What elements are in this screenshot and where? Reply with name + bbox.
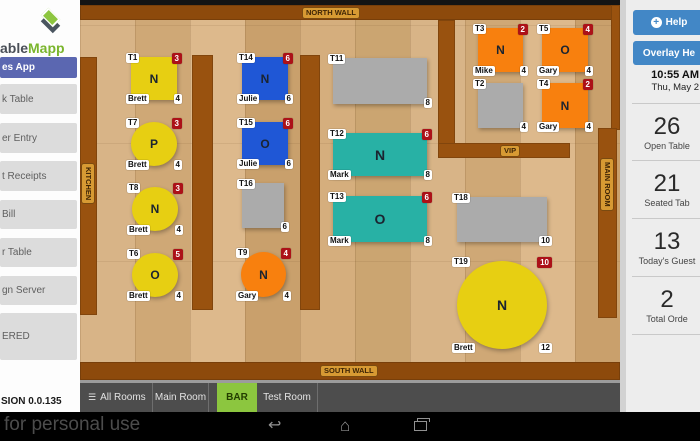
date-label: Thu, May 2 bbox=[626, 82, 699, 94]
table-id-chip: T13 bbox=[328, 192, 346, 202]
tab-bar: All RoomsMain RoomBARTest Room bbox=[80, 383, 620, 412]
stat-0: 26Open Table bbox=[632, 103, 700, 161]
server-chip: Gary bbox=[236, 291, 258, 301]
seats-chip: 4 bbox=[585, 66, 593, 76]
server-chip: Gary bbox=[537, 122, 559, 132]
status-badge: 3 bbox=[172, 118, 182, 129]
seats-chip: 6 bbox=[285, 94, 293, 104]
status-badge: 3 bbox=[173, 183, 183, 194]
table-id-chip: T16 bbox=[237, 179, 255, 189]
status-badge: 3 bbox=[172, 53, 182, 64]
table-letter: N bbox=[457, 261, 547, 349]
sidebar-item-6[interactable]: gn Server bbox=[0, 276, 77, 305]
wall-vip-right bbox=[611, 5, 620, 130]
main-room-label: MAIN ROOM bbox=[600, 158, 614, 211]
stat-label: Today's Guest bbox=[639, 256, 696, 267]
status-badge: 2 bbox=[518, 24, 528, 35]
seats-chip: 4 bbox=[174, 94, 182, 104]
seats-chip: 8 bbox=[424, 170, 432, 180]
wall-divider-1 bbox=[192, 55, 213, 310]
server-chip: Julie bbox=[237, 159, 259, 169]
sidebar-item-5[interactable]: r Table bbox=[0, 238, 77, 267]
sidebar-item-1[interactable]: k Table bbox=[0, 84, 77, 114]
table-t11[interactable]: T118 bbox=[333, 58, 427, 104]
table-id-chip: T8 bbox=[127, 183, 140, 193]
table-t19[interactable]: T1910NBrett12 bbox=[457, 261, 547, 349]
seats-chip: 4 bbox=[520, 66, 528, 76]
watermark-text: for personal use bbox=[4, 414, 140, 436]
table-id-chip: T1 bbox=[126, 53, 139, 63]
help-icon bbox=[651, 17, 662, 28]
status-badge: 6 bbox=[422, 129, 432, 140]
table-t9[interactable]: T94NGary4 bbox=[241, 252, 286, 297]
tab-test_room[interactable]: Test Room bbox=[257, 383, 318, 412]
table-id-chip: T5 bbox=[537, 24, 550, 34]
table-t13[interactable]: T136OMark8 bbox=[333, 196, 427, 242]
north-wall-label: NORTH WALL bbox=[302, 7, 360, 19]
tablemapp-logo-icon bbox=[36, 6, 66, 36]
table-id-chip: T11 bbox=[328, 54, 345, 64]
clock: 10:55 AM Thu, May 2 bbox=[626, 69, 699, 94]
seats-chip: 6 bbox=[281, 222, 289, 232]
table-id-chip: T12 bbox=[328, 129, 346, 139]
tablemapp-app: ableMapp es Appk Tableer Entryt Receipts… bbox=[0, 0, 700, 441]
table-id-chip: T6 bbox=[127, 249, 140, 259]
status-badge: 5 bbox=[173, 249, 183, 260]
time-label: 10:55 AM bbox=[626, 69, 699, 82]
recents-icon[interactable] bbox=[414, 421, 427, 431]
table-t7[interactable]: T73PBrett4 bbox=[131, 122, 177, 166]
table-t14[interactable]: T146NJulie6 bbox=[242, 57, 288, 100]
table-id-chip: T9 bbox=[236, 248, 249, 258]
status-badge: 10 bbox=[537, 257, 552, 268]
kitchen-label: KITCHEN bbox=[81, 163, 95, 204]
table-t5[interactable]: T54OGary4 bbox=[542, 28, 588, 72]
server-chip: Gary bbox=[537, 66, 559, 76]
table-id-chip: T15 bbox=[237, 118, 255, 128]
server-chip: Mike bbox=[473, 66, 495, 76]
server-chip: Mark bbox=[328, 170, 351, 180]
server-chip: Brett bbox=[126, 94, 149, 104]
table-id-chip: T7 bbox=[126, 118, 139, 128]
status-badge: 6 bbox=[422, 192, 432, 203]
server-chip: Mark bbox=[328, 236, 351, 246]
tab-main_room[interactable]: Main Room bbox=[153, 383, 209, 412]
seats-chip: 4 bbox=[175, 291, 183, 301]
stat-3: 2Total Orde bbox=[632, 277, 700, 335]
seats-chip: 4 bbox=[585, 122, 593, 132]
sidebar-item-3[interactable]: t Receipts bbox=[0, 161, 77, 191]
seats-chip: 4 bbox=[283, 291, 291, 301]
table-id-chip: T4 bbox=[537, 79, 550, 89]
server-chip: Julie bbox=[237, 94, 259, 104]
wall-vip-left bbox=[438, 20, 455, 158]
stat-value: 2 bbox=[660, 286, 673, 314]
sidebar-item-7[interactable]: ERED bbox=[0, 313, 77, 360]
server-chip: Brett bbox=[127, 291, 150, 301]
table-t2[interactable]: T24 bbox=[478, 83, 523, 128]
table-t18[interactable]: T1810 bbox=[457, 197, 547, 242]
table-id-chip: T19 bbox=[452, 257, 470, 267]
server-chip: Brett bbox=[126, 160, 149, 170]
sidebar-item-0[interactable]: es App bbox=[0, 57, 77, 78]
sidebar-item-4[interactable]: Bill bbox=[0, 200, 77, 229]
status-badge: 4 bbox=[281, 248, 291, 259]
seats-chip: 6 bbox=[285, 159, 293, 169]
table-t1[interactable]: T13NBrett4 bbox=[131, 57, 177, 100]
table-id-chip: T3 bbox=[473, 24, 486, 34]
table-id-chip: T14 bbox=[237, 53, 255, 63]
home-icon[interactable] bbox=[340, 416, 350, 436]
server-chip: Brett bbox=[452, 343, 475, 353]
stat-1: 21Seated Tab bbox=[632, 161, 700, 219]
stat-value: 21 bbox=[654, 170, 681, 198]
help-button[interactable]: Help bbox=[633, 10, 700, 35]
wall-divider-2 bbox=[300, 55, 320, 310]
table-id-chip: T2 bbox=[473, 79, 486, 89]
back-icon[interactable] bbox=[268, 416, 281, 436]
server-chip: Brett bbox=[127, 225, 150, 235]
table-t6[interactable]: T65OBrett4 bbox=[132, 253, 178, 297]
tab-all_rooms[interactable]: All Rooms bbox=[80, 383, 153, 412]
stat-label: Open Table bbox=[644, 141, 690, 152]
seats-chip: 12 bbox=[539, 343, 552, 353]
status-badge: 6 bbox=[283, 53, 293, 64]
south-wall-label: SOUTH WALL bbox=[320, 365, 378, 377]
floor-plan: NORTH WALL SOUTH WALL KITCHEN MAIN ROOM … bbox=[80, 0, 620, 412]
seats-chip: 10 bbox=[539, 236, 552, 246]
android-nav-bar: for personal use bbox=[0, 412, 700, 441]
stat-2: 13Today's Guest bbox=[632, 219, 700, 277]
table-t4[interactable]: T42NGary4 bbox=[542, 83, 588, 128]
table-t3[interactable]: T32NMike4 bbox=[478, 28, 523, 72]
seats-chip: 4 bbox=[175, 225, 183, 235]
table-t15[interactable]: T156OJulie6 bbox=[242, 122, 288, 165]
right-sidebar: Help Overlay He 10:55 AM Thu, May 2 26Op… bbox=[620, 0, 700, 412]
overlay-help-button[interactable]: Overlay He bbox=[633, 41, 700, 65]
table-t12[interactable]: T126NMark8 bbox=[333, 133, 427, 176]
status-badge: 4 bbox=[583, 24, 593, 35]
vip-label: VIP bbox=[500, 145, 520, 157]
stat-label: Total Orde bbox=[646, 314, 688, 325]
table-t16[interactable]: T166 bbox=[242, 183, 284, 228]
stat-value: 13 bbox=[654, 228, 681, 256]
stat-label: Seated Tab bbox=[644, 198, 689, 209]
stats-list: 26Open Table21Seated Tab13Today's Guest2… bbox=[632, 103, 700, 335]
seats-chip: 8 bbox=[424, 98, 432, 108]
app-title: ableMapp bbox=[0, 40, 79, 56]
version-label: SION 0.0.135 bbox=[1, 396, 62, 407]
sidebar-item-2[interactable]: er Entry bbox=[0, 123, 77, 153]
hamburger-icon bbox=[88, 393, 96, 402]
left-sidebar: ableMapp es Appk Tableer Entryt Receipts… bbox=[0, 0, 80, 412]
table-t8[interactable]: T83NBrett4 bbox=[132, 187, 178, 231]
status-badge: 6 bbox=[283, 118, 293, 129]
table-id-chip: T18 bbox=[452, 193, 470, 203]
seats-chip: 4 bbox=[174, 160, 182, 170]
seats-chip: 4 bbox=[520, 122, 528, 132]
tab-bar[interactable]: BAR bbox=[217, 383, 257, 412]
seats-chip: 8 bbox=[424, 236, 432, 246]
status-badge: 2 bbox=[583, 79, 593, 90]
wall-main-room bbox=[598, 128, 617, 318]
stat-value: 26 bbox=[654, 113, 681, 141]
